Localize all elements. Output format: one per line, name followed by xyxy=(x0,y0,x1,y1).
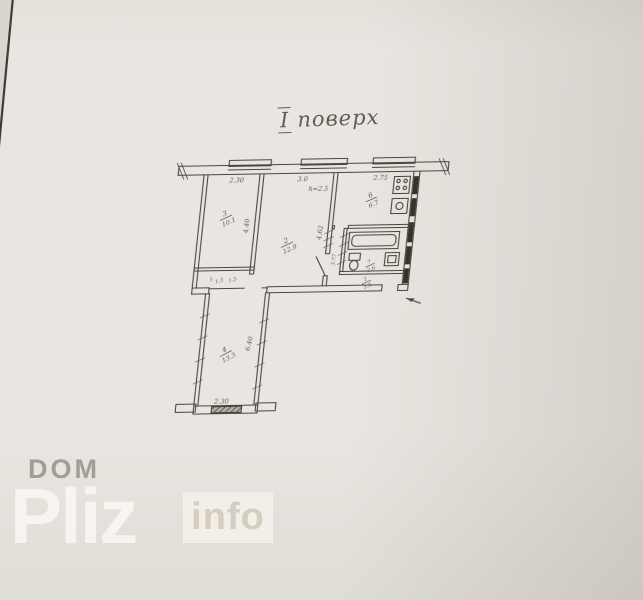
watermark-info-text: info xyxy=(191,496,265,539)
dimension-label: 3.0 xyxy=(297,175,308,183)
ceiling-height-note: h=2.5 xyxy=(308,185,329,193)
closet-extra-dim: 1.5 xyxy=(228,276,237,284)
dimension-label: 2.30 xyxy=(228,176,244,184)
bottom-wall-left xyxy=(192,288,210,294)
wall-kitchen-bath xyxy=(348,224,414,228)
wall-room2-hall xyxy=(322,276,327,286)
dimension-label: 4.62 xyxy=(315,225,325,241)
floor-plan: 2.30 3.0 h=2.5 2.75 4.40 4.62 3.77 6.40 … xyxy=(155,93,471,433)
room-label-hall: 1 3.3 xyxy=(360,275,373,291)
bottom-wall-right xyxy=(398,284,409,290)
entrance-arrow xyxy=(406,298,421,303)
door-leaf-room2 xyxy=(314,257,327,276)
washbasin-symbol xyxy=(384,252,399,265)
wall-room3-closet xyxy=(194,267,254,271)
room-label-room3: 3 10.1 xyxy=(217,206,236,229)
dimension-label: 4.40 xyxy=(242,219,252,235)
dimension-label: 3.77 xyxy=(330,253,338,266)
svg-text:7: 7 xyxy=(367,259,373,266)
wing-window xyxy=(211,406,242,413)
svg-text:1.5: 1.5 xyxy=(228,276,237,284)
svg-text:6.7: 6.7 xyxy=(368,199,380,210)
dimension-label: 2.75 xyxy=(372,174,388,182)
watermark-info-box: info xyxy=(183,492,273,543)
vent-shaft-blocks xyxy=(403,176,419,283)
toilet-symbol xyxy=(348,253,361,270)
wing-right-wall xyxy=(254,293,270,405)
sink-symbol xyxy=(391,198,409,213)
svg-text:5: 5 xyxy=(209,277,213,284)
dimension-label: 6.40 xyxy=(244,336,255,351)
svg-text:1.3: 1.3 xyxy=(215,277,225,285)
paper-corner-edge xyxy=(0,0,42,176)
bathtub-symbol xyxy=(348,231,400,249)
wing-top-opening xyxy=(209,288,267,289)
room-label-closet: 5 1.3 xyxy=(209,274,224,287)
watermark-pliz: Pliz xyxy=(10,477,136,555)
room-label-bathroom: 7 2.6 xyxy=(363,258,377,275)
stove-symbol xyxy=(393,176,411,193)
dimension-label: 2.30 xyxy=(213,398,229,406)
room-label-wing: 4 13.3 xyxy=(217,342,237,365)
room-label-room2: 2 12.9 xyxy=(278,233,297,256)
wall-room3-room2 xyxy=(250,174,264,270)
room-label-kitchen: 6 6.7 xyxy=(363,189,380,210)
wing-left-wall xyxy=(194,294,210,406)
kitchen-wall-stub xyxy=(332,226,334,229)
